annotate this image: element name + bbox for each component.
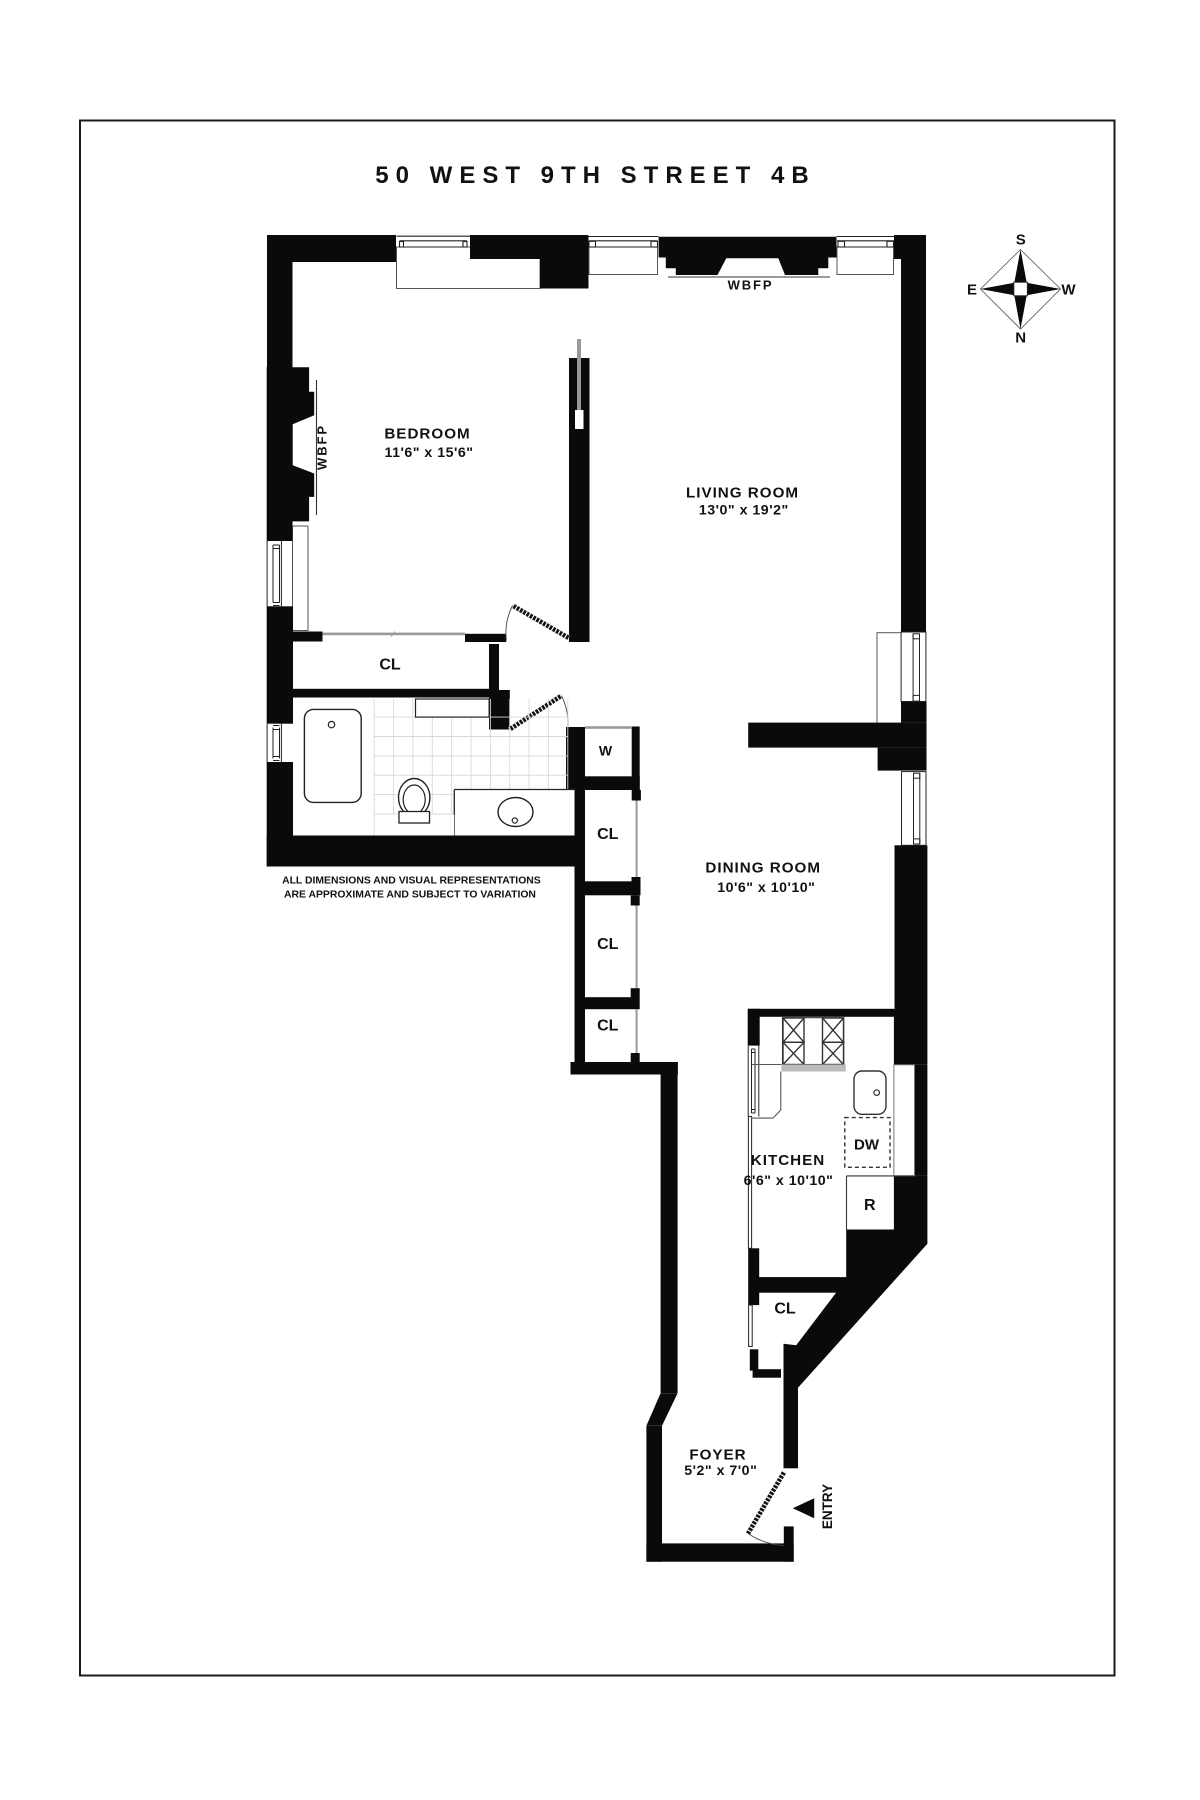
svg-text:N: N xyxy=(1015,330,1026,347)
svg-text:LIVING ROOM: LIVING ROOM xyxy=(686,484,799,501)
svg-text:WBFP: WBFP xyxy=(315,424,330,470)
svg-text:CL: CL xyxy=(379,657,401,674)
svg-text:50 WEST 9TH STREET 4B: 50 WEST 9TH STREET 4B xyxy=(375,162,815,189)
svg-text:CL: CL xyxy=(597,826,619,843)
svg-text:FOYER: FOYER xyxy=(689,1447,746,1464)
svg-text:W: W xyxy=(599,742,613,758)
svg-text:S: S xyxy=(1016,232,1026,249)
svg-text:KITCHEN: KITCHEN xyxy=(751,1152,826,1169)
svg-text:CL: CL xyxy=(597,936,619,953)
svg-text:10'6" x 10'10": 10'6" x 10'10" xyxy=(717,880,815,896)
svg-text:ENTRY: ENTRY xyxy=(820,1484,835,1529)
svg-text:11'6" x 15'6": 11'6" x 15'6" xyxy=(384,445,473,461)
svg-text:6'6" x 10'10": 6'6" x 10'10" xyxy=(744,1173,834,1189)
svg-text:ALL DIMENSIONS AND VISUAL REPR: ALL DIMENSIONS AND VISUAL REPRESENTATION… xyxy=(282,876,541,887)
svg-text:DW: DW xyxy=(854,1137,880,1154)
svg-text:BEDROOM: BEDROOM xyxy=(384,426,470,443)
svg-text:5'2" x 7'0": 5'2" x 7'0" xyxy=(684,1463,757,1479)
svg-text:R: R xyxy=(864,1197,876,1214)
svg-text:13'0" x 19'2": 13'0" x 19'2" xyxy=(699,503,789,519)
svg-text:W: W xyxy=(1061,282,1076,299)
svg-text:WBFP: WBFP xyxy=(728,278,774,293)
svg-text:ARE APPROXIMATE AND SUBJECT TO: ARE APPROXIMATE AND SUBJECT TO VARIATION xyxy=(284,890,536,901)
svg-text:CL: CL xyxy=(774,1301,796,1318)
svg-text:CL: CL xyxy=(597,1018,619,1035)
svg-text:E: E xyxy=(967,282,977,299)
svg-text:DINING ROOM: DINING ROOM xyxy=(705,859,821,876)
